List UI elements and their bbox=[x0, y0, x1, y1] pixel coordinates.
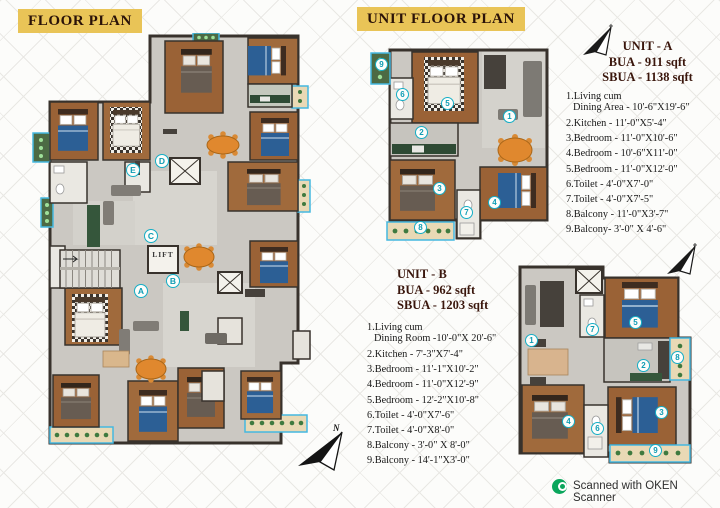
unit-a-plan bbox=[368, 45, 560, 250]
oken-scanner-icon bbox=[552, 479, 567, 494]
unit-b-marker-6: 6 bbox=[591, 422, 604, 435]
list-item: 7.Toilet - 4'-0"X7'-5" bbox=[566, 192, 718, 207]
list-item: Dining Area - 10'-6"X19'-6" bbox=[566, 102, 718, 114]
list-item: 2.Kitchen - 11'-0"X5'-4" bbox=[566, 116, 718, 131]
unit-b-title: UNIT - B bbox=[397, 267, 527, 283]
unit-a-marker-9: 9 bbox=[375, 58, 388, 71]
list-item: 8.Balcony - 11'-0"X3'-7" bbox=[566, 207, 718, 222]
list-item: 3.Bedroom - 11'-0"X10'-6" bbox=[566, 131, 718, 146]
unit-floor-plan-title: UNIT FLOOR PLAN bbox=[357, 7, 525, 31]
unit-b-heading: UNIT - B BUA - 962 sqft SBUA - 1203 sqft bbox=[397, 267, 527, 314]
list-item: 9.Balcony- 3'-0" X 4'-6" bbox=[566, 222, 718, 237]
unit-b-sbua: SBUA - 1203 sqft bbox=[397, 298, 527, 314]
unit-b-marker-8: 8 bbox=[671, 351, 684, 364]
unit-b-marker-3: 3 bbox=[655, 406, 668, 419]
list-item: 4.Bedroom - 10'-6"X11'-0" bbox=[566, 146, 718, 161]
unit-a-title: UNIT - A bbox=[585, 39, 710, 55]
scanned-floor-plan-page: FLOOR PLAN UNIT FLOOR PLAN bbox=[0, 0, 720, 508]
list-item: 6.Toilet - 4'-0"X7'-6" bbox=[367, 408, 525, 423]
staircase bbox=[60, 250, 120, 288]
list-item: 9.Balcony - 14'-1"X3'-0" bbox=[367, 453, 525, 468]
list-item: 5.Bedroom - 12'-2"X10'-8" bbox=[367, 393, 525, 408]
unit-b-bua: BUA - 962 sqft bbox=[397, 283, 527, 299]
list-item: 5.Bedroom - 11'-0"X12'-0" bbox=[566, 162, 718, 177]
unit-a-marker-1: 1 bbox=[503, 110, 516, 123]
list-item: 8.Balcony - 3'-0" X 8'-0" bbox=[367, 438, 525, 453]
scanner-watermark: Scanned with OKEN Scanner bbox=[573, 480, 720, 504]
unit-b-marker-5: 5 bbox=[629, 316, 642, 329]
list-item: 1.Living cum bbox=[566, 92, 718, 102]
unit-a-dimension-list: 1.Living cum Dining Area - 10'-6"X19'-6"… bbox=[566, 90, 718, 238]
plan-marker-a: A bbox=[134, 284, 148, 298]
list-item: 3.Bedroom - 11'-1"X10'-2" bbox=[367, 362, 525, 377]
elevator-shaft bbox=[576, 269, 602, 293]
unit-a-marker-8: 8 bbox=[414, 221, 427, 234]
unit-b-marker-1: 1 bbox=[525, 334, 538, 347]
unit-a-marker-7: 7 bbox=[460, 206, 473, 219]
unit-a-marker-2: 2 bbox=[415, 126, 428, 139]
floor-plan-title: FLOOR PLAN bbox=[18, 9, 142, 33]
plan-marker-d: D bbox=[155, 154, 169, 168]
unit-a-marker-4: 4 bbox=[488, 196, 501, 209]
unit-a-marker-3: 3 bbox=[433, 182, 446, 195]
list-item: 4.Bedroom - 11'-0"X12'-9" bbox=[367, 377, 525, 392]
list-item: Dining Room -10'-0"X 20'-6" bbox=[367, 333, 525, 345]
unit-b-marker-9: 9 bbox=[649, 444, 662, 457]
unit-b-marker-7: 7 bbox=[586, 323, 599, 336]
list-item: 7.Toilet - 4'-0"X8'-0" bbox=[367, 423, 525, 438]
plan-marker-e: E bbox=[126, 163, 140, 177]
north-arrow-icon bbox=[298, 432, 342, 470]
unit-b-marker-4: 4 bbox=[562, 415, 575, 428]
list-item: 1.Living cum bbox=[367, 323, 525, 333]
unit-a-marker-6: 6 bbox=[396, 88, 409, 101]
unit-a-bua: BUA - 911 sqft bbox=[585, 55, 710, 71]
unit-a-heading: UNIT - A BUA - 911 sqft SBUA - 1138 sqft bbox=[585, 39, 710, 86]
lift-label: LIFT bbox=[148, 250, 178, 272]
plan-marker-b: B bbox=[166, 274, 180, 288]
unit-b-dimension-list: 1.Living cum Dining Room -10'-0"X 20'-6"… bbox=[367, 321, 525, 469]
unit-a-marker-5: 5 bbox=[441, 97, 454, 110]
north-label: N bbox=[333, 423, 340, 433]
kitchen bbox=[392, 144, 456, 154]
unit-a-sbua: SBUA - 1138 sqft bbox=[585, 70, 710, 86]
plan-marker-c: C bbox=[144, 229, 158, 243]
unit-b-marker-2: 2 bbox=[637, 359, 650, 372]
list-item: 2.Kitchen - 7'-3"X7'-4" bbox=[367, 347, 525, 362]
building-floor-plan bbox=[15, 33, 350, 473]
list-item: 6.Toilet - 4'-0"X7'-0" bbox=[566, 177, 718, 192]
